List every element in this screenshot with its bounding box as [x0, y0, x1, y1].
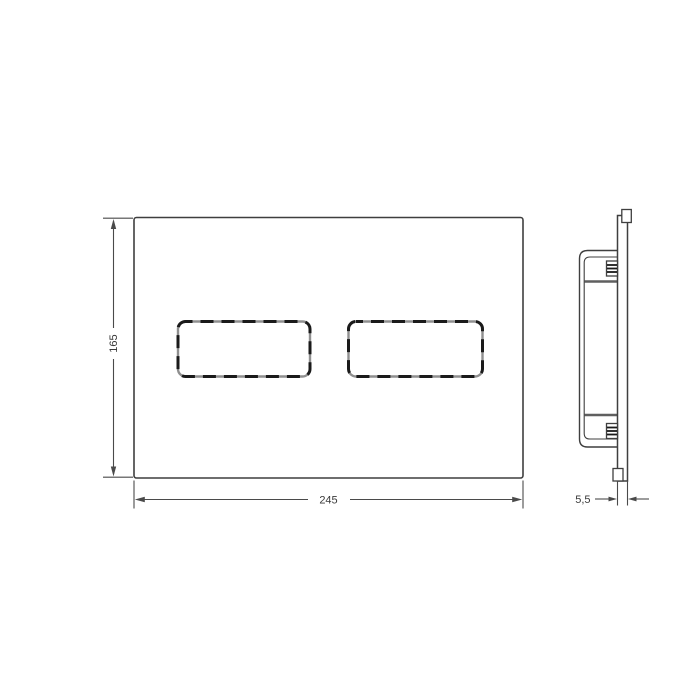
thickness-dimension: 5,5 — [575, 481, 649, 506]
side-view: 5,5 — [575, 210, 649, 506]
technical-drawing: 165 245 — [0, 0, 700, 700]
dimension-arrow-left-icon — [135, 497, 145, 502]
width-dimension-label: 245 — [319, 494, 337, 506]
height-dimension-label: 165 — [108, 334, 120, 352]
housing-outline — [580, 251, 618, 448]
housing-inner-wall — [584, 257, 617, 439]
alignment-tab-top — [622, 210, 632, 223]
drawing-canvas: 165 245 — [0, 0, 700, 700]
height-dimension: 165 — [103, 218, 133, 477]
dimension-arrow-left-icon — [628, 497, 637, 502]
plate-outline — [134, 218, 523, 479]
mounting-clip-top — [607, 261, 618, 276]
mounting-clip-bottom — [607, 424, 618, 439]
width-dimension: 245 — [134, 481, 523, 509]
dimension-arrow-up-icon — [111, 219, 116, 229]
front-view: 165 245 — [103, 218, 523, 509]
plate-side-profile — [618, 216, 628, 482]
dimension-arrow-right-icon — [609, 497, 618, 502]
dimension-arrow-down-icon — [111, 467, 116, 477]
alignment-tab-bottom — [613, 469, 623, 482]
thickness-dimension-label: 5,5 — [575, 494, 590, 506]
dimension-arrow-right-icon — [512, 497, 522, 502]
